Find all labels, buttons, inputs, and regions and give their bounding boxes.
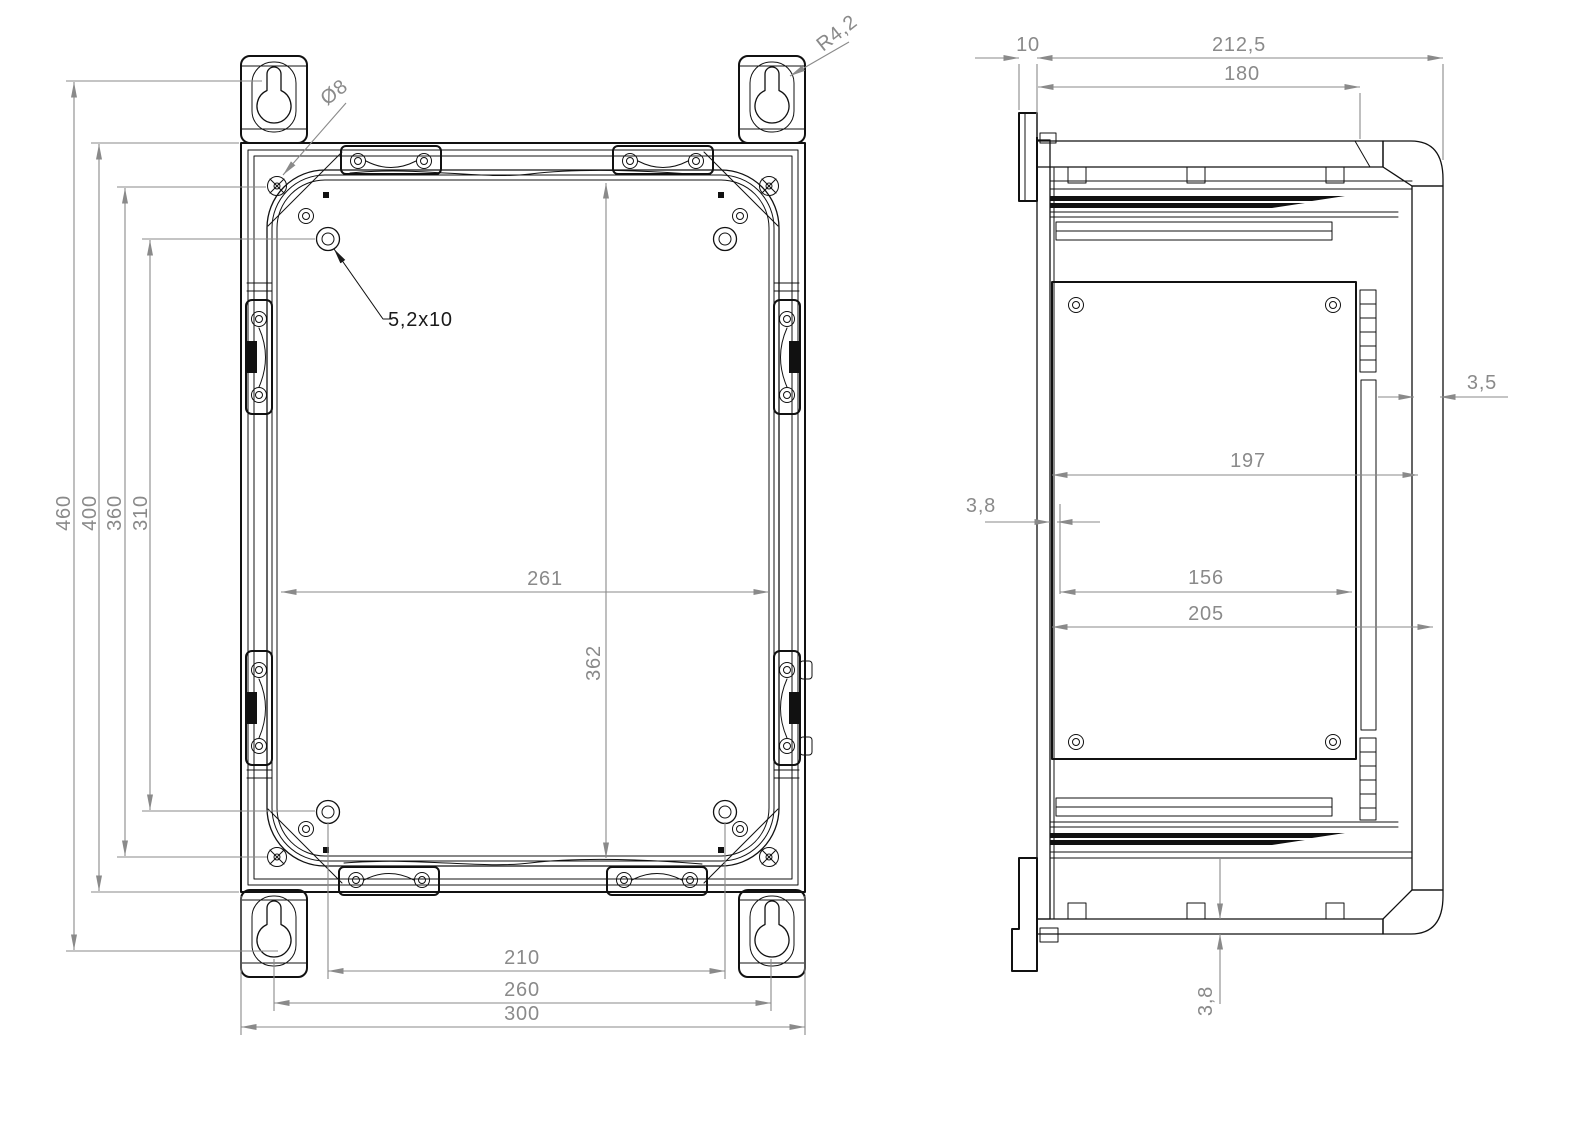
mounting-tab-top-left	[241, 56, 307, 143]
dim-body-height: 400	[79, 495, 101, 531]
lid-bottom-band	[1037, 919, 1383, 934]
dim-lid-depth: 180	[1224, 63, 1260, 85]
dim-body-width: 300	[504, 1003, 540, 1025]
dim-lid-wall: 3,5	[1467, 372, 1497, 394]
dim-overall-height: 460	[53, 495, 75, 531]
front-view: 460 400 360 310 261 362 210 260 300 Ø8 R…	[53, 11, 862, 1035]
gasket-wave-bottom	[344, 859, 702, 864]
top-bracket	[1019, 113, 1037, 201]
lid-corner-top	[1383, 141, 1443, 186]
body-outline	[241, 143, 805, 892]
dim-inner-depth: 197	[1230, 450, 1266, 472]
dim-cavity-depth: 205	[1188, 603, 1224, 625]
seal-channel	[267, 170, 779, 866]
corner-screws	[268, 177, 779, 867]
dim-boss-height: 360	[104, 495, 126, 531]
lid-section	[1037, 141, 1443, 934]
dim-base-wall: 3,8	[1195, 986, 1217, 1016]
edge-clamps	[339, 146, 713, 895]
drawing-page: 460 400 360 310 261 362 210 260 300 Ø8 R…	[0, 0, 1587, 1123]
dim-rear-wall: 3,8	[966, 495, 996, 517]
front-view-dimensions: 460 400 360 310 261 362 210 260 300 Ø8 R…	[53, 11, 862, 1035]
dim-slot-width: 210	[504, 947, 540, 969]
leader-hole-diameter	[283, 103, 346, 175]
din-rail-strip	[1360, 290, 1376, 820]
bottom-bracket	[1012, 858, 1037, 971]
mounting-tab-bottom-right	[739, 890, 805, 977]
lid-corner-bottom	[1383, 890, 1443, 934]
side-view: 10 212,5 180 3,5 197 3,8 156 205 3,8	[966, 34, 1508, 1016]
dim-inner-width: 261	[527, 568, 563, 590]
dim-bracket-offset: 10	[1016, 34, 1040, 56]
lid-front-wall	[1412, 186, 1443, 890]
ann-hole-diameter: Ø8	[317, 75, 353, 110]
mounting-panel	[1052, 282, 1356, 759]
dim-panel-offset: 156	[1188, 567, 1224, 589]
lid-top-band	[1037, 141, 1383, 167]
dim-overall-depth: 212,5	[1212, 34, 1266, 56]
ann-slot-size: 5,2x10	[388, 309, 453, 331]
slot-holes	[317, 228, 737, 824]
leader-slot-size	[334, 249, 392, 319]
dim-inner-height: 362	[583, 645, 605, 681]
mounting-tab-top-right	[739, 56, 805, 143]
dim-slot-height: 310	[130, 495, 152, 531]
cad-drawing: 460 400 360 310 261 362 210 260 300 Ø8 R…	[0, 0, 1587, 1123]
side-latches	[246, 300, 812, 765]
dim-keyhole-width: 260	[504, 979, 540, 1001]
